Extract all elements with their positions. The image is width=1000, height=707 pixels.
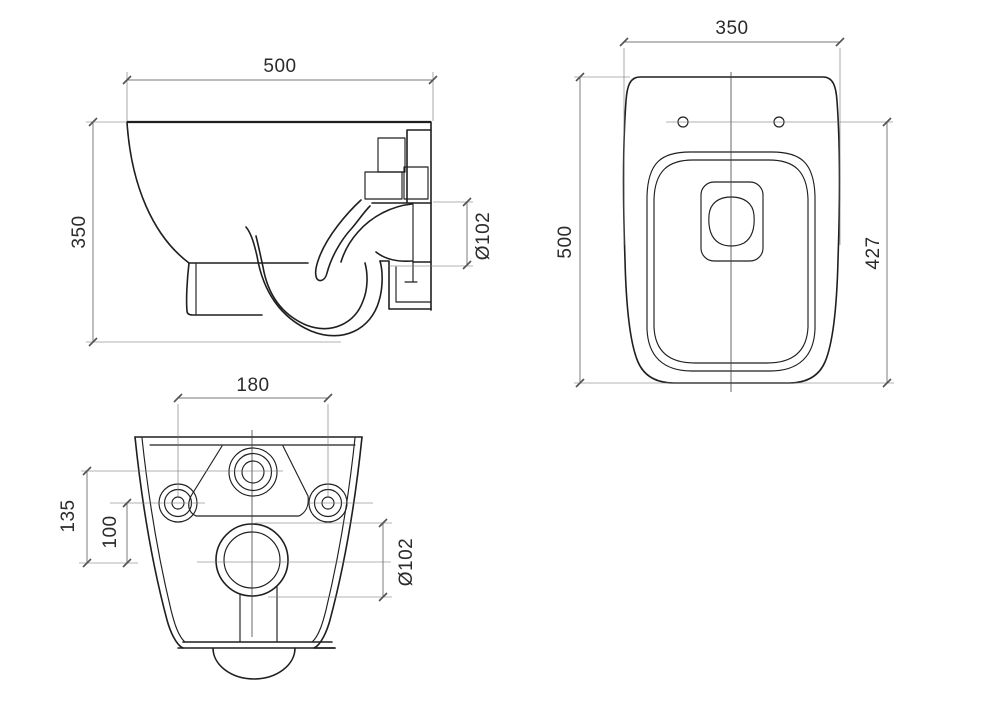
side-spigot-wall [405, 203, 417, 282]
side-height-ext-lines [86, 122, 341, 342]
rear-mount-panel [189, 446, 309, 516]
rear-trapway-walls [240, 586, 277, 642]
top-depth-label: 500 [555, 225, 576, 258]
side-height-label: 350 [69, 215, 90, 248]
top-hinge-to-front-label: 427 [863, 236, 884, 269]
rear-view-dimensions [79, 394, 392, 601]
rear-right-wall-outer [314, 437, 362, 648]
side-bowl-profile [127, 122, 189, 263]
rear-inlet-circle-outer [229, 448, 277, 496]
rear-right-wall-inner [312, 438, 355, 642]
side-outlet-channel-lower [376, 252, 412, 261]
side-view [127, 122, 431, 336]
side-valve-block-b [365, 172, 405, 199]
side-width-label: 500 [263, 56, 296, 77]
side-width-ext-lines [127, 72, 433, 121]
rear-inlet-circle-inner [242, 461, 264, 483]
side-trap-inner-arc [256, 236, 367, 329]
rear-bolt-drop-label: 100 [100, 515, 121, 548]
side-foot-outer [187, 263, 262, 315]
top-depth-ext-lines [574, 77, 894, 383]
rear-bolt-spacing-label: 180 [236, 375, 269, 396]
top-view [624, 77, 840, 383]
side-outlet-diameter-label: Ø102 [473, 212, 494, 260]
drawing-sheet: 500 350 Ø102 350 500 427 180 135 100 Ø10… [0, 0, 1000, 707]
top-width-label: 350 [715, 18, 748, 39]
rear-outlet-diameter-label: Ø102 [396, 538, 417, 586]
side-flush-channel [316, 200, 370, 281]
dimension-labels: 500 350 Ø102 350 500 427 180 135 100 Ø10… [58, 18, 884, 586]
rear-left-wall-outer [135, 437, 183, 648]
top-outlet-blob [709, 197, 754, 246]
rear-left-wall-inner [142, 438, 185, 642]
rear-bowl-bulge [213, 648, 295, 679]
rear-outlet-ext-lines [255, 523, 392, 597]
toilet-technical-drawing: 500 350 Ø102 350 500 427 180 135 100 Ø10… [0, 0, 1000, 707]
side-valve-block-a [378, 138, 405, 172]
top-view-dimensions [574, 38, 894, 387]
side-tank-cavity [407, 130, 431, 202]
rear-outlet-level-line [79, 562, 391, 563]
rear-inlet-drop-label: 135 [58, 499, 79, 532]
rear-inlet-circle-mid [235, 454, 272, 491]
